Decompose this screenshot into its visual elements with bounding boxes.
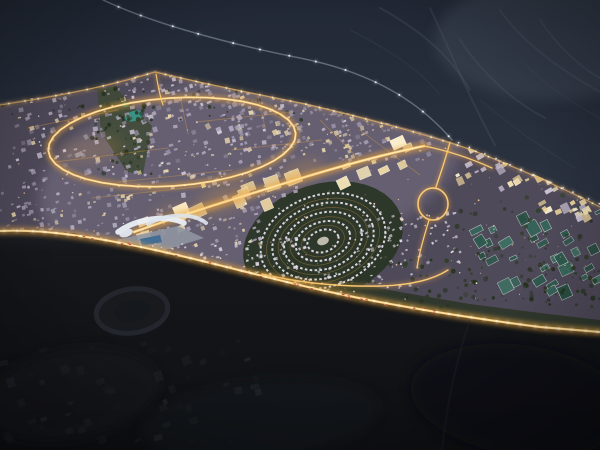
- scene-layers: [0, 0, 600, 450]
- aerial-city-rendering: [0, 0, 600, 450]
- aerial-city-screenshot: [0, 0, 600, 450]
- vignette: [0, 0, 600, 450]
